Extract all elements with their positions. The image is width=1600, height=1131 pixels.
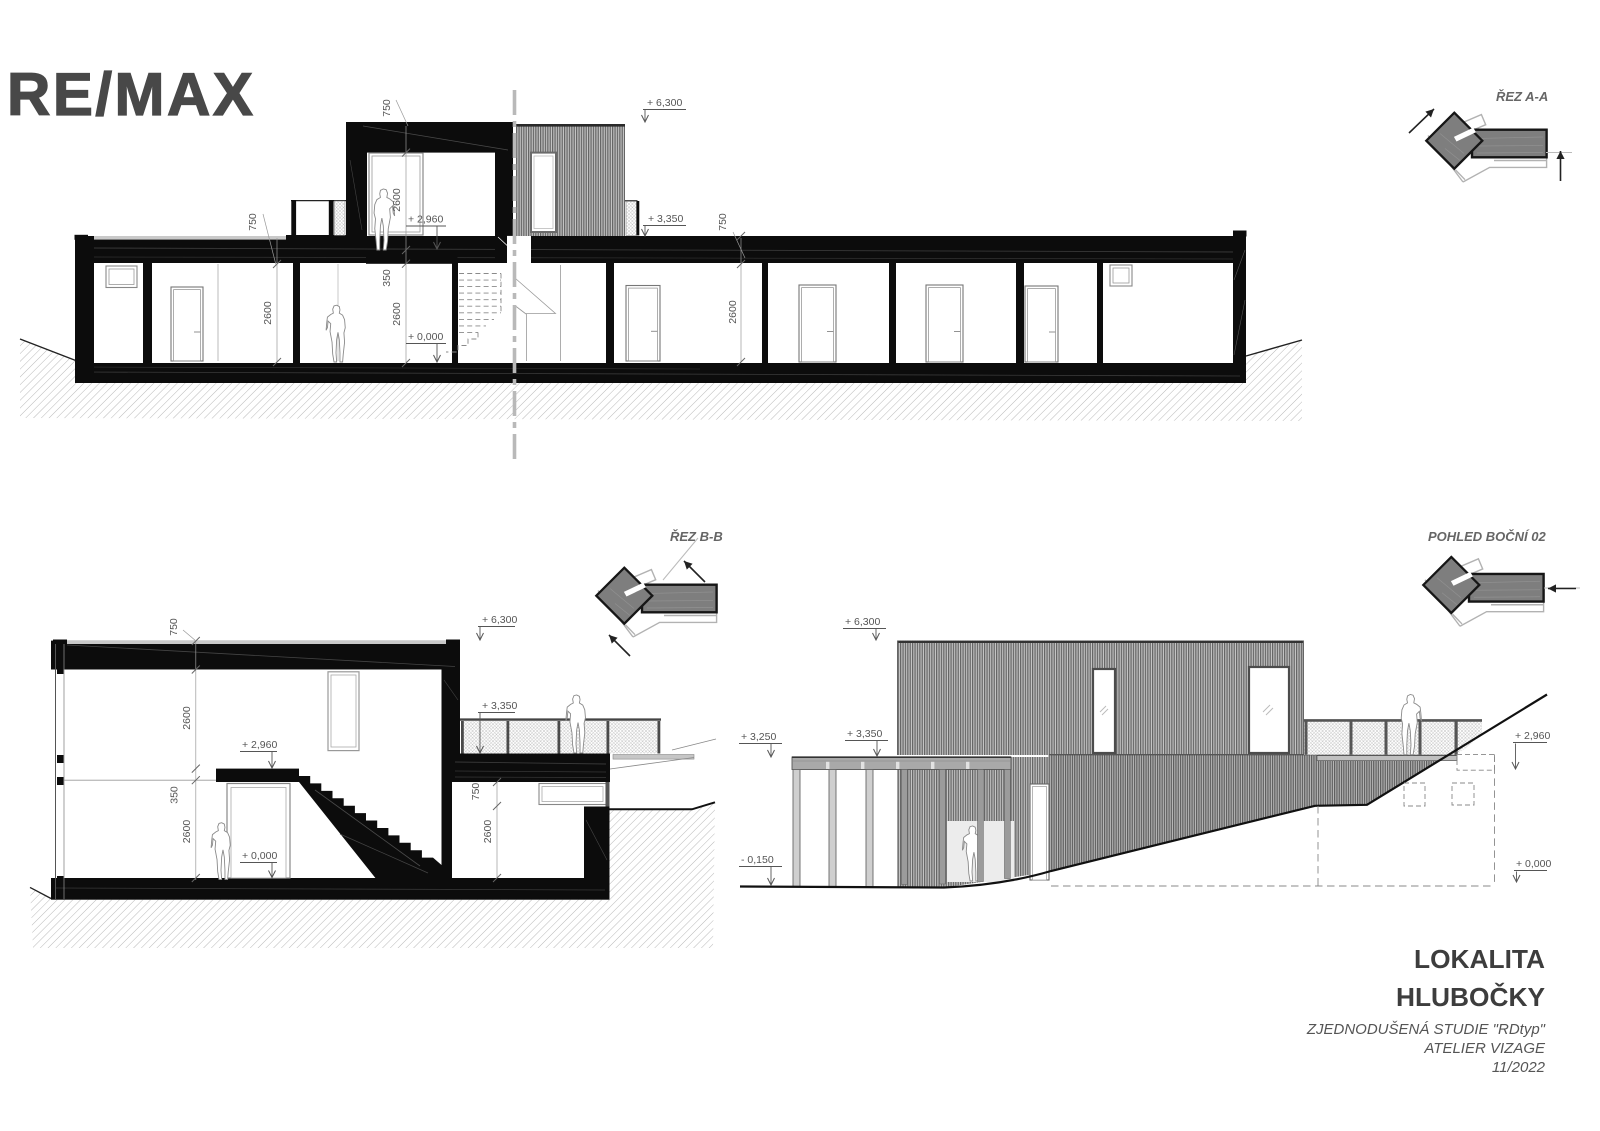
- svg-text:ZJEDNODUŠENÁ STUDIE "RDtyp": ZJEDNODUŠENÁ STUDIE "RDtyp": [1306, 1021, 1546, 1038]
- svg-text:+ 2,960: + 2,960: [242, 739, 277, 751]
- svg-text:ŘEZ B-B: ŘEZ B-B: [670, 529, 723, 544]
- svg-text:2600: 2600: [391, 188, 403, 212]
- svg-text:+ 3,350: + 3,350: [482, 700, 517, 712]
- svg-text:+ 0,000: + 0,000: [408, 331, 443, 343]
- svg-text:+ 0,000: + 0,000: [242, 850, 277, 862]
- svg-text:750: 750: [470, 783, 482, 801]
- svg-text:750: 750: [247, 213, 259, 231]
- svg-text:2600: 2600: [482, 820, 494, 844]
- svg-text:POHLED BOČNÍ 02: POHLED BOČNÍ 02: [1428, 529, 1547, 544]
- svg-text:11/2022: 11/2022: [1492, 1059, 1546, 1076]
- svg-text:+ 3,250: + 3,250: [741, 731, 776, 743]
- svg-text:+ 2,960: + 2,960: [408, 214, 443, 226]
- svg-text:ŘEZ A-A: ŘEZ A-A: [1496, 89, 1548, 104]
- svg-text:350: 350: [381, 269, 393, 287]
- svg-text:RE/MAX: RE/MAX: [7, 61, 255, 128]
- svg-text:- 0,150: - 0,150: [741, 854, 774, 866]
- svg-text:2600: 2600: [181, 706, 193, 730]
- svg-text:350: 350: [169, 786, 181, 804]
- svg-text:+ 6,300: + 6,300: [482, 614, 517, 626]
- svg-text:750: 750: [381, 99, 393, 117]
- svg-text:750: 750: [717, 213, 729, 231]
- svg-text:+ 6,300: + 6,300: [845, 616, 880, 628]
- svg-text:2600: 2600: [391, 302, 403, 326]
- svg-text:+ 3,350: + 3,350: [648, 213, 683, 225]
- svg-text:750: 750: [168, 618, 180, 636]
- svg-text:LOKALITA: LOKALITA: [1414, 944, 1545, 974]
- svg-text:2600: 2600: [727, 300, 739, 324]
- svg-text:+ 0,000: + 0,000: [1516, 858, 1551, 870]
- svg-text:HLUBOČKY: HLUBOČKY: [1396, 982, 1545, 1012]
- svg-text:ATELIER VIZAGE: ATELIER VIZAGE: [1423, 1040, 1546, 1057]
- svg-text:2600: 2600: [262, 301, 274, 325]
- svg-text:+ 6,300: + 6,300: [647, 97, 682, 109]
- svg-text:+ 3,350: + 3,350: [847, 728, 882, 740]
- svg-text:+ 2,960: + 2,960: [1515, 730, 1550, 742]
- svg-text:2600: 2600: [181, 820, 193, 844]
